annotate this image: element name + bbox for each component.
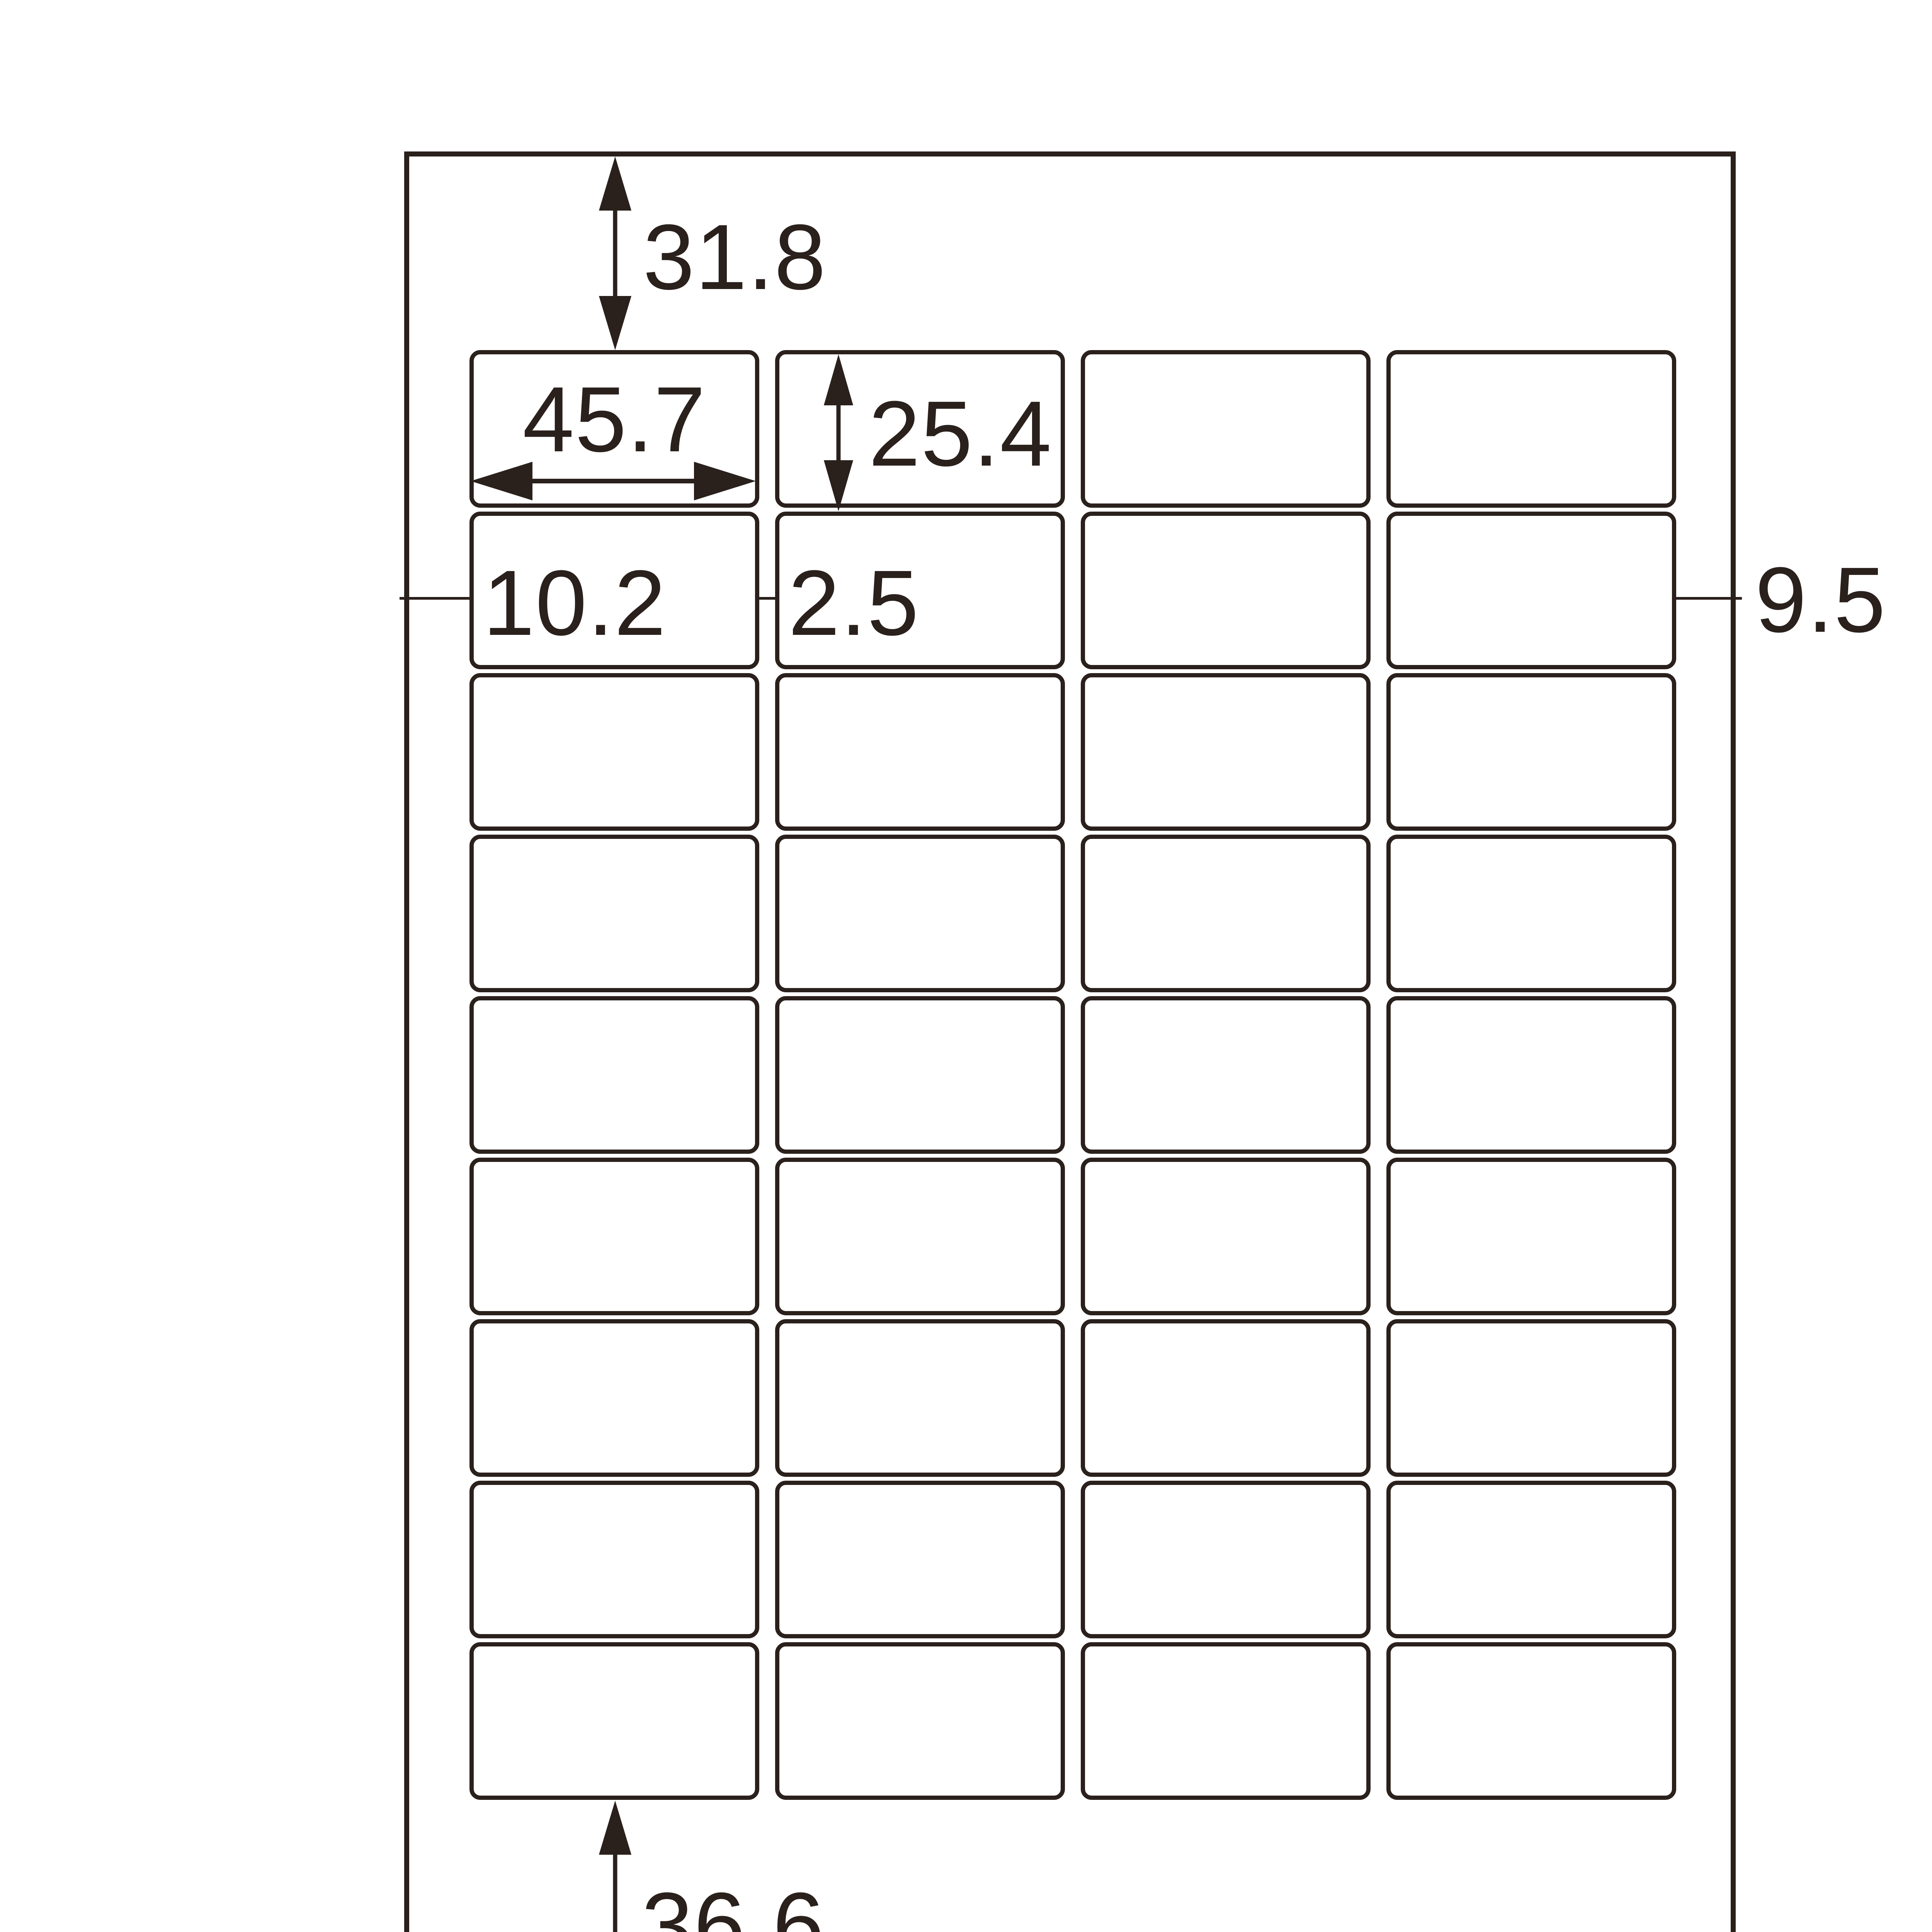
arrow-shaft — [837, 397, 841, 469]
label-cell — [1386, 1158, 1676, 1315]
label-cell — [1081, 673, 1371, 831]
arrowhead-right-icon — [694, 462, 756, 500]
arrow-shaft — [521, 479, 706, 483]
dim-top-margin: 31.8 — [643, 211, 827, 303]
label-cell — [1081, 350, 1371, 508]
label-cell — [1081, 1319, 1371, 1477]
label-cell — [775, 835, 1065, 992]
arrow-shaft — [613, 1843, 617, 1932]
label-cell — [469, 1642, 759, 1800]
label-cell — [469, 1319, 759, 1477]
label-cell — [1386, 996, 1676, 1154]
label-cell — [1081, 996, 1371, 1154]
label-cell — [1081, 1481, 1371, 1638]
dim-column-gap: 2.5 — [788, 556, 920, 649]
label-cell — [1081, 512, 1371, 669]
label-cell — [469, 835, 759, 992]
label-cell — [775, 673, 1065, 831]
label-cell — [1386, 1319, 1676, 1477]
right-margin-tick-icon — [1676, 597, 1742, 600]
label-cell — [469, 996, 759, 1154]
column-gap-tick-icon — [758, 597, 776, 600]
dim-right-margin: 9.5 — [1755, 553, 1886, 646]
label-cell — [1386, 835, 1676, 992]
arrowhead-down-icon — [599, 296, 631, 350]
label-cell — [775, 1158, 1065, 1315]
label-cell — [1386, 512, 1676, 669]
label-cell — [1386, 1481, 1676, 1638]
dim-label-width: 45.7 — [522, 373, 706, 466]
arrow-shaft — [613, 199, 617, 308]
label-cell — [775, 996, 1065, 1154]
dim-label-height: 25.4 — [869, 387, 1052, 480]
label-cell — [775, 1319, 1065, 1477]
arrowhead-down-icon — [824, 460, 853, 511]
label-cell — [1081, 835, 1371, 992]
label-cell — [1386, 673, 1676, 831]
label-cell — [469, 1481, 759, 1638]
label-cell — [775, 1481, 1065, 1638]
label-cell — [1081, 1158, 1371, 1315]
label-cell — [1386, 350, 1676, 508]
label-height-arrow-icon — [824, 354, 853, 511]
label-cell — [1386, 1642, 1676, 1800]
dim-bottom-margin: 36.6 — [641, 1879, 825, 1932]
bottom-margin-arrow-icon — [599, 1801, 631, 1932]
top-margin-arrow-icon — [599, 156, 631, 350]
label-cell — [1081, 1642, 1371, 1800]
label-width-arrow-icon — [471, 462, 756, 500]
dim-left-margin: 10.2 — [483, 556, 667, 649]
left-margin-tick-icon — [400, 597, 469, 600]
label-cell — [469, 673, 759, 831]
label-cell — [469, 1158, 759, 1315]
label-cell — [775, 1642, 1065, 1800]
